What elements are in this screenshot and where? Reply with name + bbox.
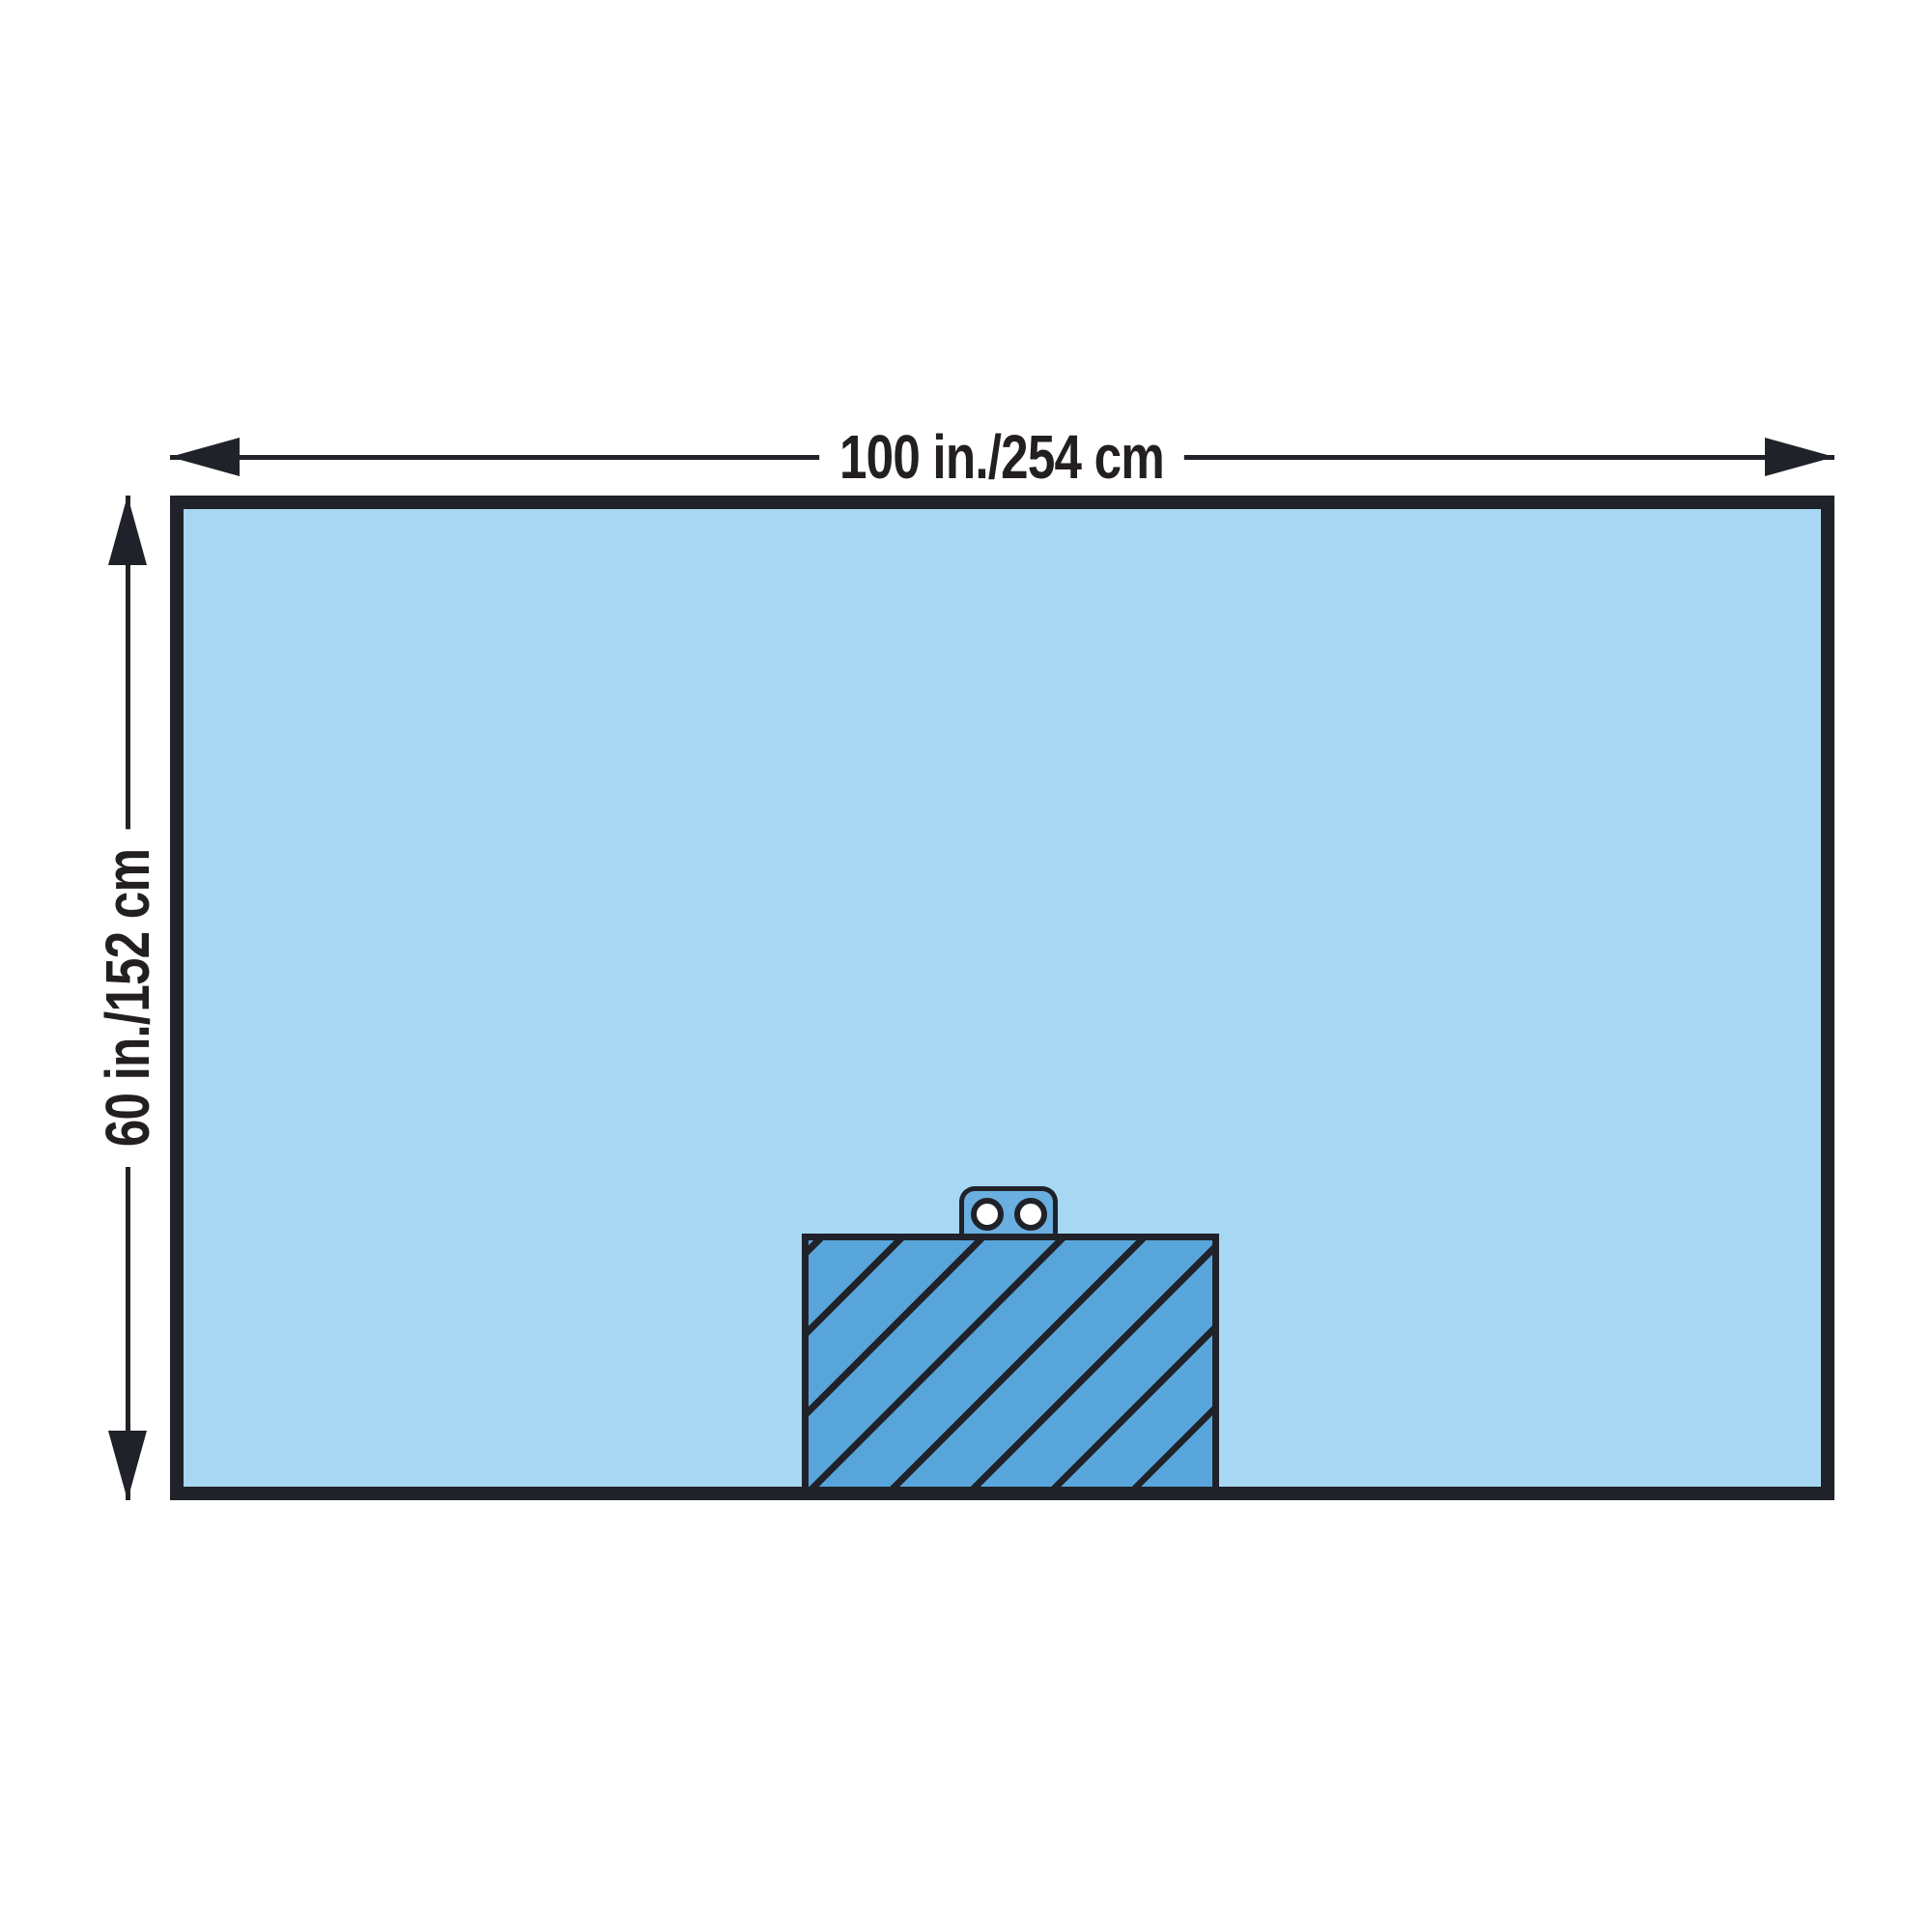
height-dimension-label: 60 in./152 cm (89, 829, 166, 1167)
arrowhead-right-icon (1765, 438, 1834, 476)
arrowhead-down-icon (108, 1431, 147, 1500)
tape-tab (959, 1186, 1058, 1240)
reinforcement-area (802, 1234, 1219, 1487)
width-dimension-label: 100 in./254 cm (819, 418, 1184, 496)
arrowhead-left-icon (170, 438, 240, 476)
diagram-canvas: 100 in./254 cm 60 in./152 cm (0, 0, 1932, 1932)
tab-hole-left (971, 1198, 1004, 1231)
tab-hole-right (1014, 1198, 1047, 1231)
arrowhead-up-icon (108, 496, 147, 565)
